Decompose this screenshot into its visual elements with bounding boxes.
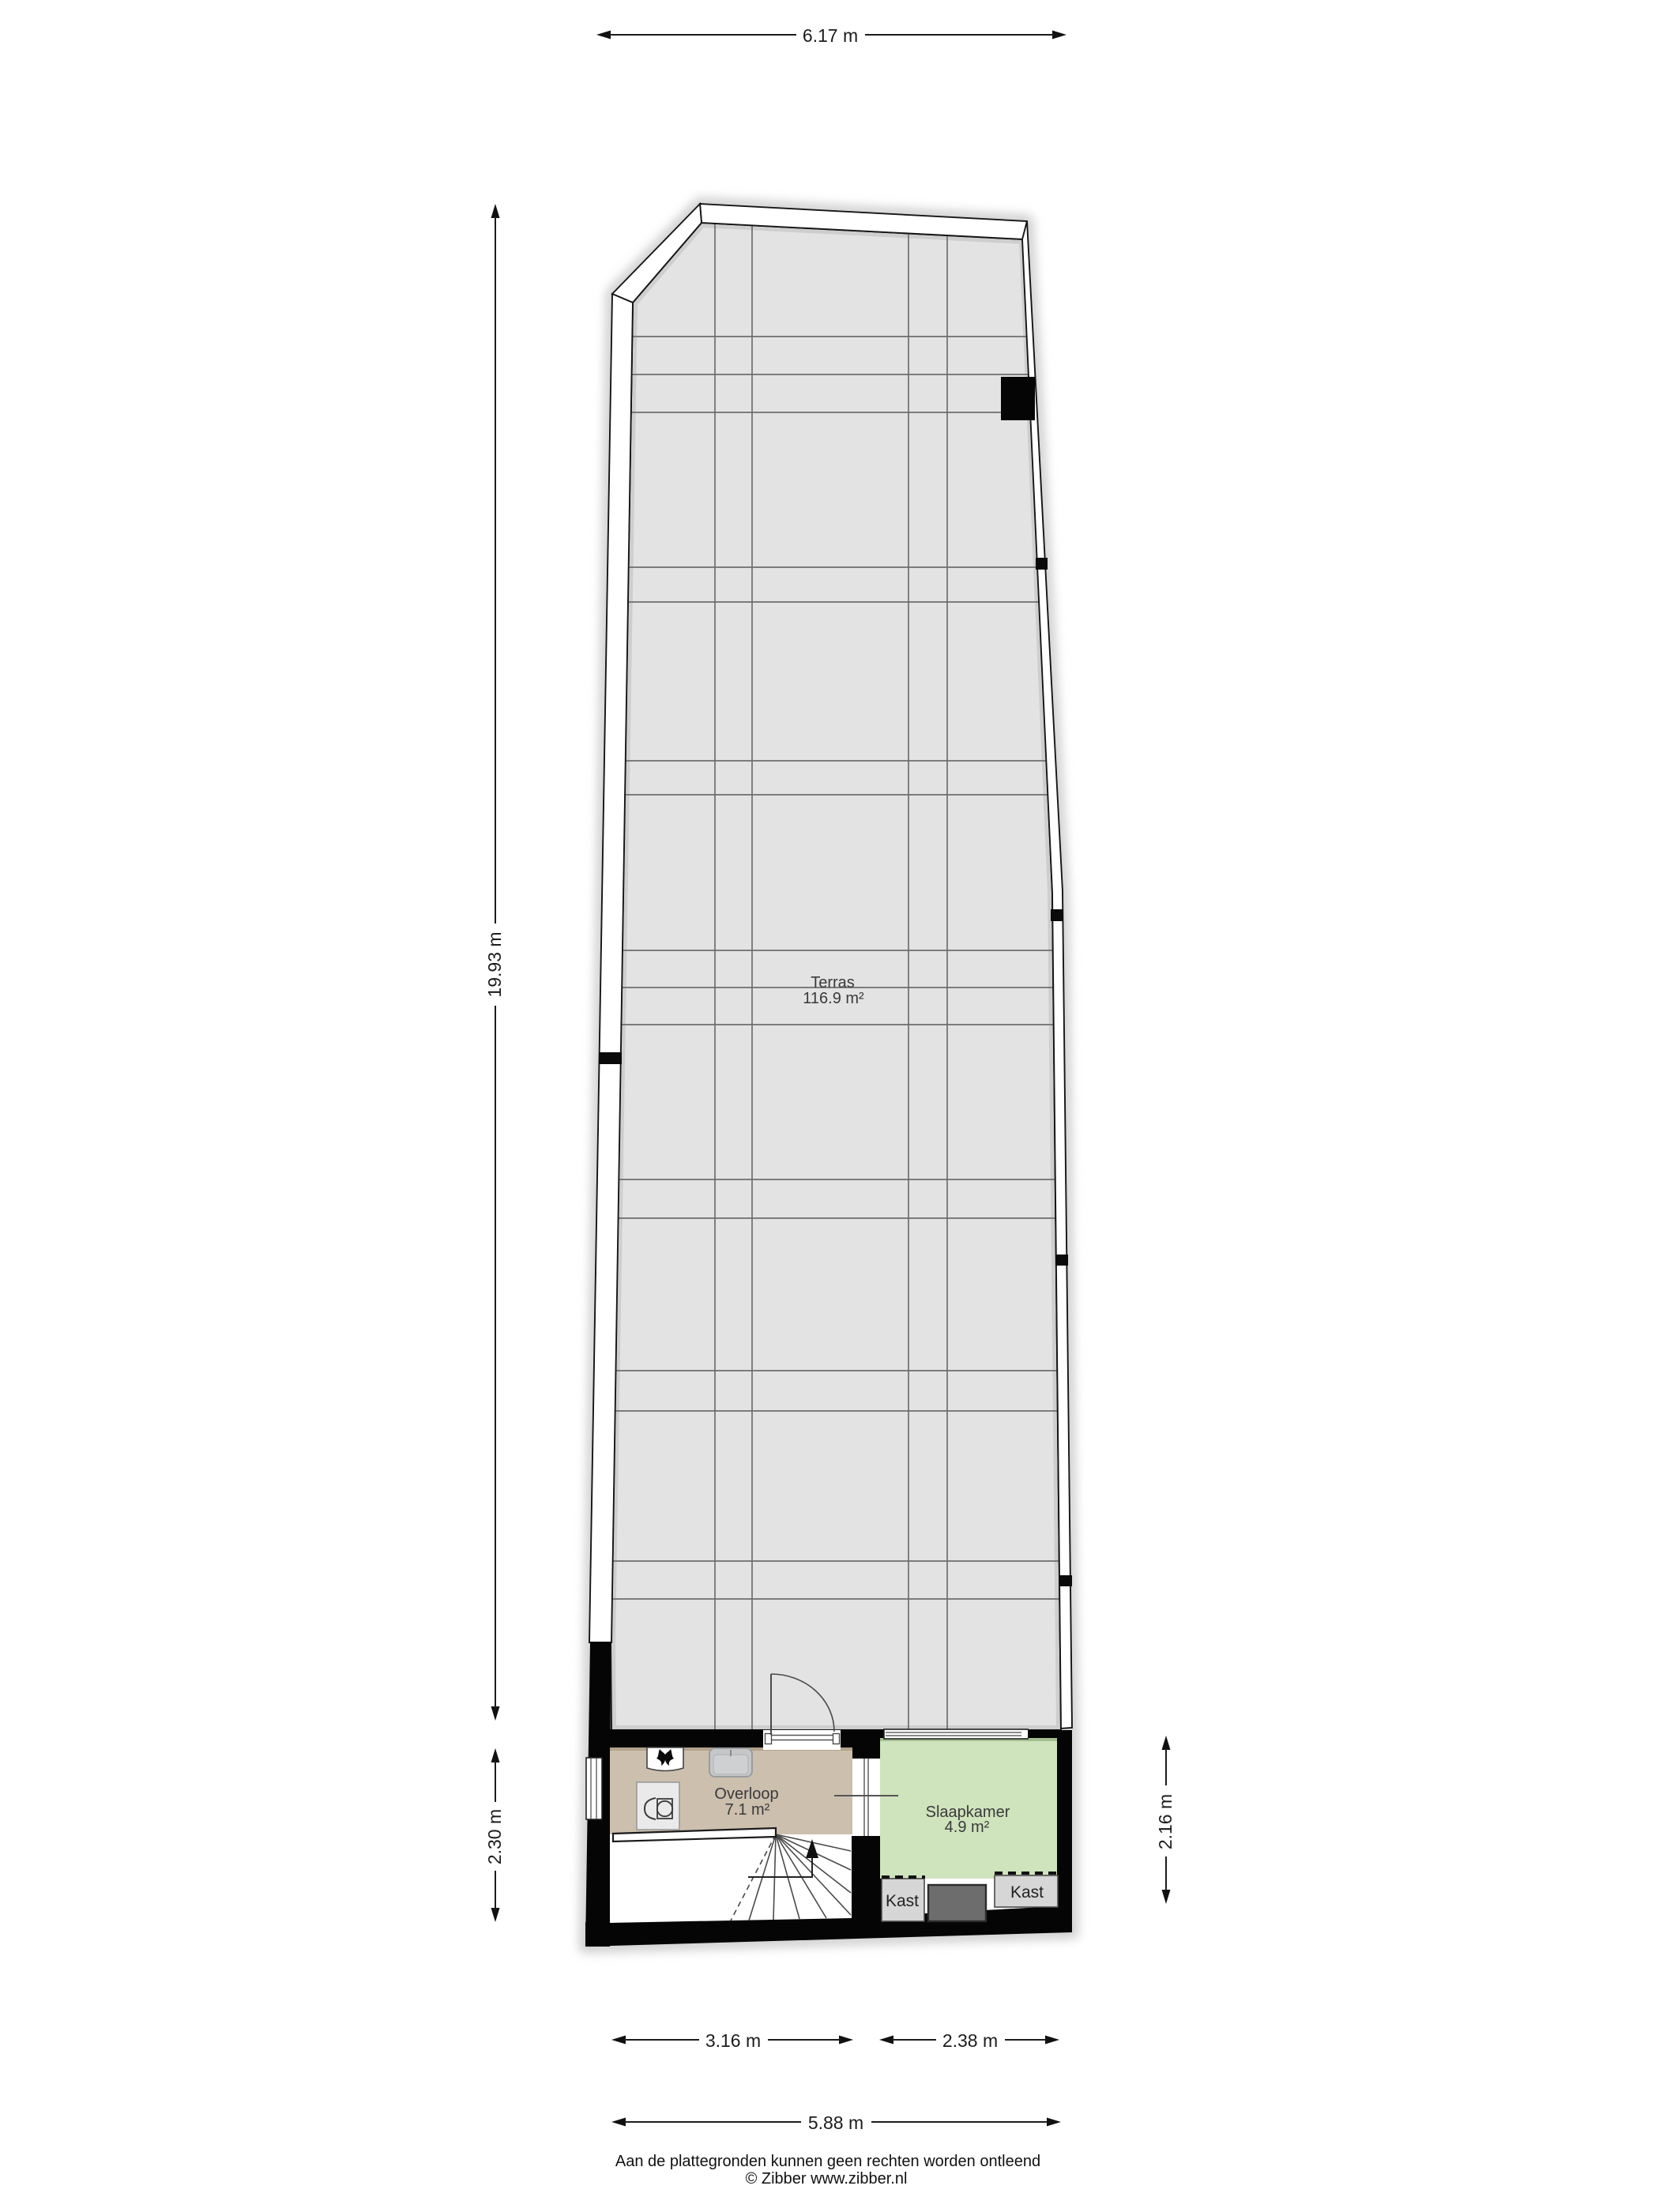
svg-text:2.30 m: 2.30 m (484, 1809, 505, 1864)
svg-text:Overloop: Overloop (714, 1785, 778, 1803)
svg-text:2.16 m: 2.16 m (1155, 1794, 1176, 1849)
svg-text:4.9 m²: 4.9 m² (945, 1819, 990, 1836)
svg-text:3.16 m: 3.16 m (705, 2030, 761, 2051)
svg-text:5.88 m: 5.88 m (808, 2112, 863, 2133)
svg-text:Terras: Terras (811, 974, 855, 991)
svg-text:Kast: Kast (1010, 1883, 1044, 1902)
svg-text:Aan de plattegronden kunnen ge: Aan de plattegronden kunnen geen rechten… (615, 2153, 1040, 2170)
svg-text:19.93 m: 19.93 m (484, 931, 505, 997)
svg-text:© Zibber www.zibber.nl: © Zibber www.zibber.nl (746, 2170, 908, 2188)
svg-text:116.9 m²: 116.9 m² (803, 990, 864, 1007)
svg-text:7.1 m²: 7.1 m² (725, 1801, 770, 1819)
svg-text:6.17 m: 6.17 m (803, 25, 858, 46)
svg-text:2.38 m: 2.38 m (942, 2030, 998, 2051)
svg-text:Kast: Kast (886, 1892, 919, 1910)
